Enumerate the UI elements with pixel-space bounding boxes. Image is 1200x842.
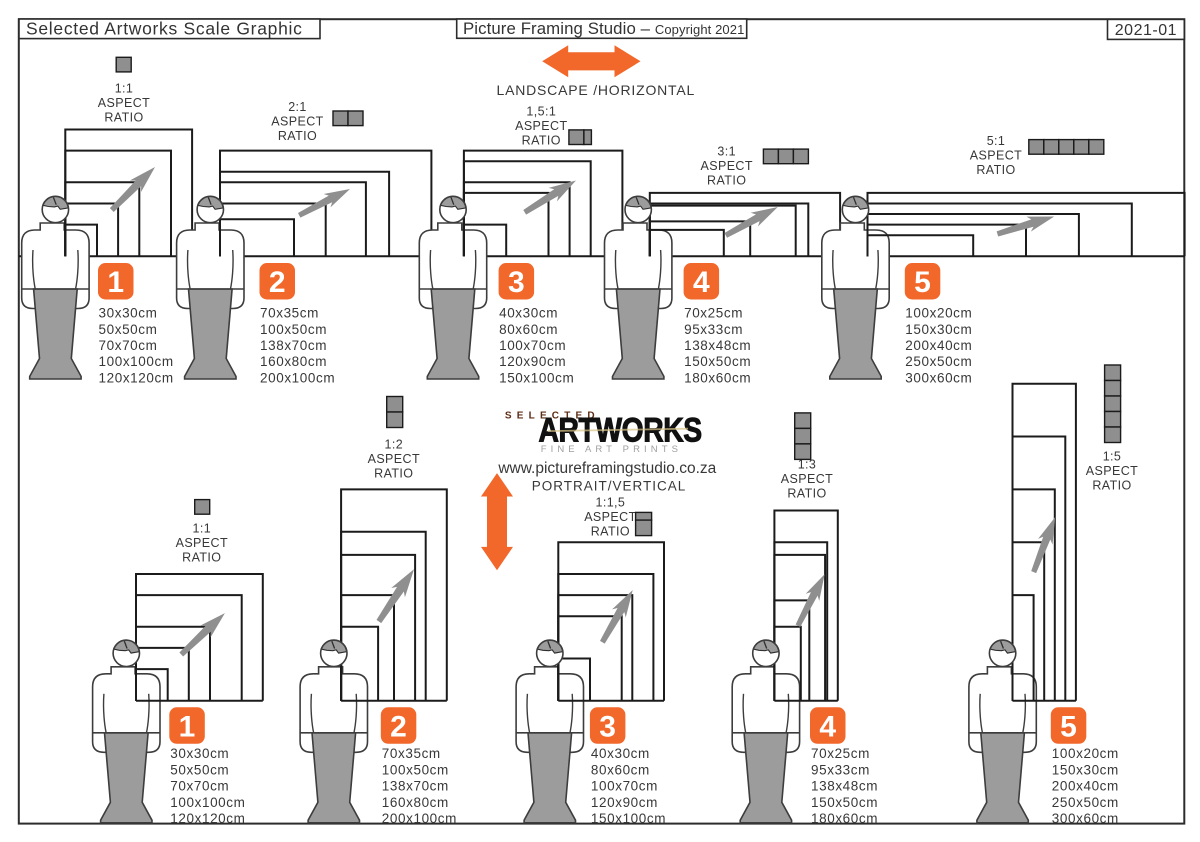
- svg-text:250x50cm: 250x50cm: [905, 354, 972, 369]
- svg-text:138x70cm: 138x70cm: [260, 338, 327, 353]
- svg-text:3: 3: [599, 710, 616, 743]
- svg-text:ASPECT: ASPECT: [271, 114, 323, 128]
- svg-text:95x33cm: 95x33cm: [684, 322, 743, 337]
- svg-text:100x70cm: 100x70cm: [591, 779, 658, 794]
- svg-text:1:1: 1:1: [115, 82, 134, 96]
- svg-text:120x90cm: 120x90cm: [591, 795, 658, 810]
- svg-text:RATIO: RATIO: [278, 129, 317, 143]
- svg-text:RATIO: RATIO: [707, 173, 746, 187]
- svg-text:200x40cm: 200x40cm: [1052, 779, 1119, 794]
- svg-text:180x60cm: 180x60cm: [684, 370, 751, 385]
- svg-text:70x35cm: 70x35cm: [260, 306, 319, 321]
- svg-text:1: 1: [107, 266, 124, 299]
- svg-text:138x48cm: 138x48cm: [811, 779, 878, 794]
- svg-text:RATIO: RATIO: [182, 551, 221, 565]
- svg-text:100x100cm: 100x100cm: [170, 795, 245, 810]
- svg-text:1:1: 1:1: [193, 522, 212, 536]
- svg-text:150x50cm: 150x50cm: [811, 795, 878, 810]
- svg-text:2: 2: [390, 710, 407, 743]
- svg-text:100x70cm: 100x70cm: [499, 338, 566, 353]
- svg-text:2021-01: 2021-01: [1115, 22, 1177, 39]
- svg-text:150x100cm: 150x100cm: [591, 811, 666, 826]
- svg-text:95x33cm: 95x33cm: [811, 762, 870, 777]
- svg-text:ASPECT: ASPECT: [1086, 464, 1138, 478]
- svg-text:150x100cm: 150x100cm: [499, 370, 574, 385]
- svg-text:160x80cm: 160x80cm: [382, 795, 449, 810]
- svg-text:150x50cm: 150x50cm: [684, 354, 751, 369]
- svg-text:50x50cm: 50x50cm: [170, 762, 229, 777]
- svg-text:200x100cm: 200x100cm: [382, 811, 457, 826]
- svg-text:1:5: 1:5: [1103, 450, 1122, 464]
- svg-text:5: 5: [1060, 710, 1077, 743]
- svg-text:5:1: 5:1: [987, 134, 1006, 148]
- svg-text:200x40cm: 200x40cm: [905, 338, 972, 353]
- svg-text:1: 1: [179, 710, 196, 743]
- svg-text:3: 3: [508, 266, 525, 299]
- svg-text:3:1: 3:1: [717, 144, 736, 158]
- svg-text:RATIO: RATIO: [787, 487, 826, 501]
- svg-text:PORTRAIT/VERTICAL: PORTRAIT/VERTICAL: [532, 479, 687, 494]
- svg-text:250x50cm: 250x50cm: [1052, 795, 1119, 810]
- svg-text:RATIO: RATIO: [104, 111, 143, 125]
- svg-text:ASPECT: ASPECT: [781, 472, 833, 486]
- svg-text:30x30cm: 30x30cm: [99, 306, 158, 321]
- svg-text:70x25cm: 70x25cm: [684, 306, 743, 321]
- svg-text:80x60cm: 80x60cm: [499, 322, 558, 337]
- svg-text:40x30cm: 40x30cm: [591, 746, 650, 761]
- svg-text:ASPECT: ASPECT: [98, 96, 150, 110]
- svg-text:100x20cm: 100x20cm: [905, 306, 972, 321]
- svg-text:120x120cm: 120x120cm: [170, 811, 245, 826]
- svg-text:138x70cm: 138x70cm: [382, 779, 449, 794]
- svg-text:LANDSCAPE /HORIZONTAL: LANDSCAPE /HORIZONTAL: [497, 82, 696, 98]
- svg-text:70x70cm: 70x70cm: [170, 779, 229, 794]
- svg-text:300x60cm: 300x60cm: [1052, 811, 1119, 826]
- svg-text:200x100cm: 200x100cm: [260, 370, 335, 385]
- svg-text:70x35cm: 70x35cm: [382, 746, 441, 761]
- svg-text:ASPECT: ASPECT: [515, 119, 567, 133]
- svg-text:RATIO: RATIO: [591, 525, 630, 539]
- svg-text:Selected Artworks Scale Graphi: Selected Artworks Scale Graphic: [26, 19, 303, 39]
- svg-text:5: 5: [914, 266, 931, 299]
- svg-text:50x50cm: 50x50cm: [99, 322, 158, 337]
- svg-text:100x50cm: 100x50cm: [382, 762, 449, 777]
- svg-text:2:1: 2:1: [288, 100, 307, 114]
- svg-text:150x30cm: 150x30cm: [905, 322, 972, 337]
- svg-text:80x60cm: 80x60cm: [591, 762, 650, 777]
- svg-text:4: 4: [819, 710, 836, 743]
- svg-text:2: 2: [269, 266, 286, 299]
- svg-text:1:2: 1:2: [385, 437, 404, 451]
- svg-text:70x70cm: 70x70cm: [99, 338, 158, 353]
- svg-text:180x60cm: 180x60cm: [811, 811, 878, 826]
- svg-text:RATIO: RATIO: [522, 134, 561, 148]
- svg-text:RATIO: RATIO: [374, 466, 413, 480]
- svg-text:30x30cm: 30x30cm: [170, 746, 229, 761]
- svg-text:300x60cm: 300x60cm: [905, 370, 972, 385]
- svg-text:1,5:1: 1,5:1: [526, 105, 556, 119]
- svg-text:4: 4: [693, 266, 710, 299]
- svg-text:150x30cm: 150x30cm: [1052, 762, 1119, 777]
- svg-text:ASPECT: ASPECT: [368, 452, 420, 466]
- svg-text:40x30cm: 40x30cm: [499, 306, 558, 321]
- svg-text:FINE ART PRINTS: FINE ART PRINTS: [541, 444, 682, 455]
- svg-text:120x120cm: 120x120cm: [99, 370, 174, 385]
- svg-text:ASPECT: ASPECT: [700, 159, 752, 173]
- svg-text:ASPECT: ASPECT: [970, 149, 1022, 163]
- svg-text:120x90cm: 120x90cm: [499, 354, 566, 369]
- svg-text:100x50cm: 100x50cm: [260, 322, 327, 337]
- svg-text:Picture Framing Studio – Copyr: Picture Framing Studio – Copyright 2021: [463, 19, 744, 38]
- svg-text:100x20cm: 100x20cm: [1052, 746, 1119, 761]
- svg-text:ASPECT: ASPECT: [584, 510, 636, 524]
- svg-text:RATIO: RATIO: [976, 163, 1015, 177]
- svg-text:RATIO: RATIO: [1092, 479, 1131, 493]
- svg-text:1:1,5: 1:1,5: [595, 496, 625, 510]
- svg-text:160x80cm: 160x80cm: [260, 354, 327, 369]
- svg-text:100x100cm: 100x100cm: [99, 354, 174, 369]
- svg-text:ASPECT: ASPECT: [176, 536, 228, 550]
- svg-text:70x25cm: 70x25cm: [811, 746, 870, 761]
- svg-text:www.pictureframingstudio.co.za: www.pictureframingstudio.co.za: [497, 460, 716, 477]
- svg-text:138x48cm: 138x48cm: [684, 338, 751, 353]
